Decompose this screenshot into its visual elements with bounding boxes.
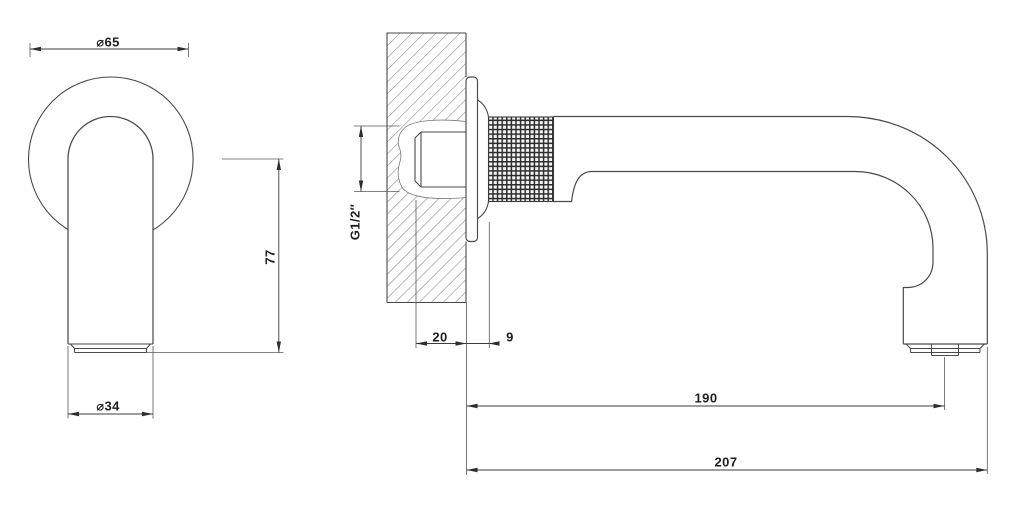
wall-flange-side xyxy=(466,77,478,242)
spout-arm xyxy=(554,117,988,345)
spout-body-front xyxy=(68,117,153,345)
knurled-collar xyxy=(489,117,554,202)
dim-label-reach-to-aerator: 190 xyxy=(695,392,718,405)
dim-label-total-projection: 207 xyxy=(715,456,738,469)
dim-label-recess-depth: 20 xyxy=(432,330,447,343)
dim-label-tip-height: 77 xyxy=(264,249,277,264)
dim-label-flange-projection: 9 xyxy=(506,330,514,343)
aerator-tip-side xyxy=(906,344,985,356)
front-view xyxy=(29,77,194,353)
side-view xyxy=(387,33,987,356)
dim-label-thread-size: G1/2″ xyxy=(349,204,362,240)
dim-label-spout-diameter: ⌀34 xyxy=(96,400,120,413)
flange-boss xyxy=(478,100,489,219)
aerator-tip-front xyxy=(68,344,153,353)
dim-label-flange-diameter: ⌀65 xyxy=(96,35,120,48)
technical-drawing-page: ⌀65 77 ⌀34 G1/2″ 20 9 190 207 xyxy=(0,0,1024,512)
technical-drawing-canvas xyxy=(0,0,1024,512)
wall-section xyxy=(387,33,467,303)
